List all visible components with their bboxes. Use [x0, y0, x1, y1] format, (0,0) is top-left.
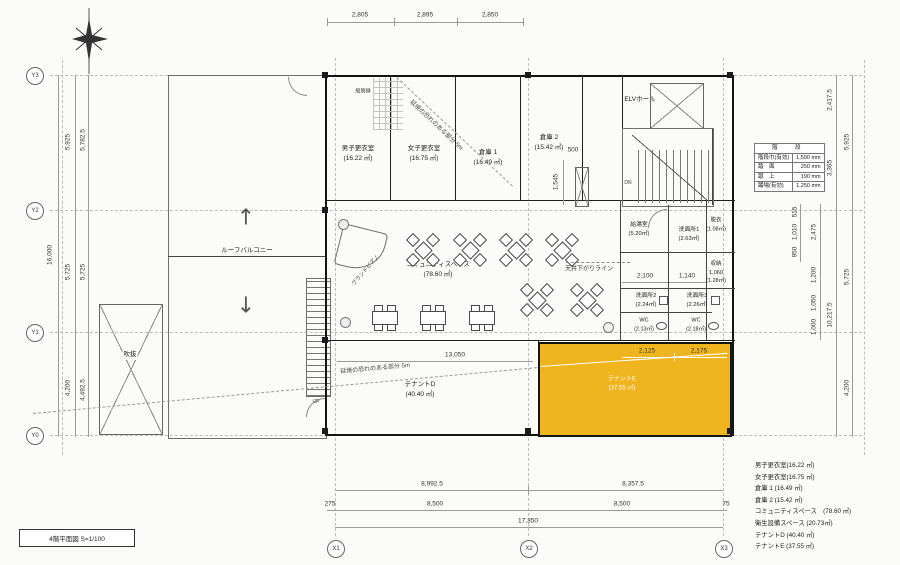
- room-label-tenant-d: テナントD (40.40 ㎡): [405, 380, 436, 400]
- column: [525, 72, 531, 78]
- grid-bubble-y1: Y1: [26, 324, 44, 342]
- room-label-kitchenette: 給湯室 (5.20㎡): [629, 221, 650, 239]
- dim-line-left-inner: [88, 75, 89, 437]
- roof-balcony-step-line: [168, 256, 325, 257]
- column: [322, 337, 328, 343]
- table-4seat: [520, 283, 554, 317]
- column: [727, 428, 733, 434]
- table-4seat: [406, 233, 440, 267]
- dim-left-outer-3: 4,200: [65, 380, 72, 396]
- ceiling-drop-label: 天井下がりライン: [565, 264, 613, 273]
- grid-bubble-y0: Y0: [26, 427, 44, 445]
- grid-bubble-y3: Y3: [26, 67, 44, 85]
- dim-detail-2475: 2,475: [811, 224, 818, 240]
- column: [322, 207, 328, 213]
- wall-sanitary-1: [668, 205, 669, 340]
- dim-line-13050: [337, 361, 533, 362]
- room-label-wc1: WC (2.13㎡): [634, 316, 654, 333]
- dim-detail-1000: 1,000: [811, 319, 818, 335]
- column: [322, 428, 328, 434]
- room-label-storage2: 倉庫 2 (15.42 ㎡): [535, 133, 564, 153]
- dim-top-2: 2,895: [417, 12, 433, 19]
- wall-sanitary-3: [620, 252, 735, 253]
- round-column: [603, 322, 614, 333]
- dim-line-bottom-2: [327, 510, 727, 511]
- dim-line-2100-1140: [622, 282, 706, 283]
- dim-detail-1050: 1,050: [811, 295, 818, 311]
- dim-1140: 1,140: [679, 273, 695, 280]
- toilet-icon: [656, 322, 667, 330]
- column: [525, 428, 531, 434]
- dim-500: 500: [568, 147, 579, 154]
- schedule-line: 倉庫 1 (16.49 ㎡): [755, 483, 851, 495]
- north-arrow-icon: [66, 8, 112, 78]
- title-block: 4階平面図 S=1/100: [19, 529, 135, 547]
- column: [727, 72, 733, 78]
- stair-flight-line: [632, 135, 707, 200]
- room-schedule: 男子更衣室(16.22 ㎡) 女子更衣室(16.75 ㎡) 倉庫 1 (16.4…: [755, 460, 851, 553]
- dim-left-outer-1: 5,925: [65, 134, 72, 150]
- dim-left-inner-3: 4,492.5: [80, 379, 87, 401]
- drawing-title: 4階平面図 S=1/100: [49, 533, 105, 543]
- dim-2175: 2,175: [691, 348, 707, 355]
- stair-spec-header: 階 段: [755, 144, 825, 154]
- room-label-washroom1: 洗面所1 (2.63㎡): [679, 226, 700, 244]
- schedule-line: 女子更衣室(16.75 ㎡): [755, 472, 851, 484]
- dim-left-inner-2: 5,725: [80, 264, 87, 280]
- grid-bubble-x3: X3: [715, 540, 733, 558]
- schedule-line: テナントE (37.55 ㎡): [755, 541, 851, 553]
- dim-line-bottom-1: [335, 490, 723, 491]
- dim-line-left-total: [58, 75, 59, 437]
- table-4seat: [499, 233, 533, 267]
- room-label-void: 吹抜: [123, 350, 138, 360]
- boundary-line-right: [864, 60, 865, 455]
- room-label-womens-locker: 女子更衣室 (16.75 ㎡): [408, 144, 441, 164]
- dim-line-bottom-total: [335, 527, 723, 528]
- grid-bubble-x1: X1: [327, 540, 345, 558]
- dim-bottom-75: 75: [722, 501, 729, 508]
- dim-tick: [457, 18, 458, 26]
- dim-1545: 1,545: [553, 174, 560, 190]
- room-label-wc2: WC (2.18㎡): [686, 316, 706, 333]
- dim-left-outer-2: 5,725: [65, 264, 72, 280]
- down-arrow-icon: ↓: [237, 294, 255, 319]
- room-label-washroom2: 洗面所2 (2.24㎡): [636, 292, 657, 310]
- dim-detail-950: 950: [792, 247, 799, 258]
- dim-left-total: 16,000: [47, 245, 54, 265]
- dim-detail-1200: 1,200: [811, 267, 818, 283]
- dim-tick: [523, 18, 524, 26]
- room-label-closet: 収納 1,060 (1.28㎡): [706, 260, 726, 286]
- dim-tick: [327, 18, 328, 26]
- dim-2100: 2,100: [637, 273, 653, 280]
- service-shaft: [575, 167, 589, 207]
- round-column: [340, 317, 351, 328]
- dim-right-inner-1: 2,417.5: [827, 89, 834, 111]
- sink-icon: [711, 296, 720, 305]
- elevator-shaft: [650, 83, 704, 129]
- schedule-line: 倉庫 2 (15.42 ㎡): [755, 495, 851, 507]
- wall-sanitary-5: [620, 312, 712, 313]
- table-4seat: [453, 233, 487, 267]
- wall-y-lower: [325, 340, 735, 341]
- up-arrow-icon: ↑: [237, 206, 255, 231]
- dim-top-3: 2,850: [482, 12, 498, 19]
- dim-13050: 13,050: [445, 352, 465, 359]
- dim-right-inner-3: 10,217.5: [827, 302, 834, 327]
- roof-balcony-outline: [168, 75, 327, 439]
- schedule-line: テナントD (40.40 ㎡): [755, 530, 851, 542]
- dim-line-right-detail-2: [820, 204, 821, 340]
- dim-2125: 2,125: [639, 348, 655, 355]
- dim-top-1: 2,805: [352, 12, 368, 19]
- boundary-line-left: [62, 60, 63, 455]
- dim-bottom-8357: 8,357.5: [622, 481, 644, 488]
- column: [322, 72, 328, 78]
- dim-bottom-275: 275: [325, 501, 336, 508]
- dim-line-right-detail-1: [800, 204, 801, 262]
- dim-bottom-8992: 8,992.5: [421, 481, 443, 488]
- floor-plan-sheet: Y3 Y2 Y1 Y0 X1 X2 X3 2,805 2,895 2,850 1…: [0, 0, 900, 565]
- sink-icon: [659, 296, 668, 305]
- room-label-storage1: 倉庫 1 (16.49 ㎡): [474, 148, 503, 168]
- schedule-line: 男子更衣室(16.22 ㎡): [755, 460, 851, 472]
- dim-detail-1010: 1,010: [792, 224, 799, 240]
- dim-right-outer-1: 5,925: [844, 134, 851, 150]
- dim-tick: [394, 18, 395, 26]
- round-column: [338, 219, 349, 230]
- schedule-line: コミュニティスペース (78.60 ㎡): [755, 506, 851, 518]
- table-rect: [418, 305, 448, 331]
- table-4seat: [570, 283, 604, 317]
- dim-right-inner-2: 3,365: [827, 160, 834, 176]
- room-label-tenant-e: テナントE (37.55 ㎡): [608, 376, 636, 395]
- dim-bottom-total: 17,350: [518, 518, 538, 525]
- room-label-mens-locker: 男子更衣室 (16.22 ㎡): [342, 144, 375, 164]
- dim-line-1545: [563, 160, 564, 205]
- dim-right-outer-3: 4,200: [844, 380, 851, 396]
- dim-bottom-8500a: 8,500: [427, 501, 443, 508]
- dim-line-right-inner: [836, 75, 837, 437]
- dim-line-right-outer: [852, 75, 853, 437]
- stair-spec-table: 階 段 階段巾(有効)1,500 mm 踏 面250 mm 蹴 上190 mm …: [754, 143, 825, 192]
- room-label-dressing: 脱衣 (1.08㎡): [706, 216, 726, 233]
- wall-community-sanitary: [620, 200, 621, 340]
- wall-storage1-storage2: [520, 75, 521, 200]
- table-rect: [467, 305, 497, 331]
- dim-left-inner-1: 5,782.5: [80, 129, 87, 151]
- room-label-roof-balcony: ルーフバルコニー: [221, 246, 272, 256]
- schedule-line: 衛生設備スペース (20.73㎡): [755, 518, 851, 530]
- downspout-label: 縦雨樋: [355, 88, 370, 95]
- stair-dn-label: DN: [623, 180, 632, 186]
- room-label-washroom3: 洗面所3 (2.26㎡): [687, 292, 708, 310]
- dim-tick: [674, 353, 675, 361]
- void-shaft: [99, 304, 163, 435]
- dim-tick: [528, 486, 529, 494]
- dim-line-left-outer: [75, 75, 76, 437]
- toilet-icon: [708, 322, 719, 330]
- table-rect: [370, 305, 400, 331]
- dim-detail-515: 515: [792, 207, 799, 218]
- dim-bottom-8500b: 8,500: [614, 501, 630, 508]
- dim-right-outer-2: 5,725: [844, 269, 851, 285]
- grid-bubble-y2: Y2: [26, 202, 44, 220]
- dim-1060: 1,060: [706, 269, 726, 278]
- locker-area: [373, 78, 403, 130]
- dim-line-top: [327, 22, 523, 23]
- grid-bubble-x2: X2: [520, 540, 538, 558]
- wall-sanitary-4: [620, 288, 735, 289]
